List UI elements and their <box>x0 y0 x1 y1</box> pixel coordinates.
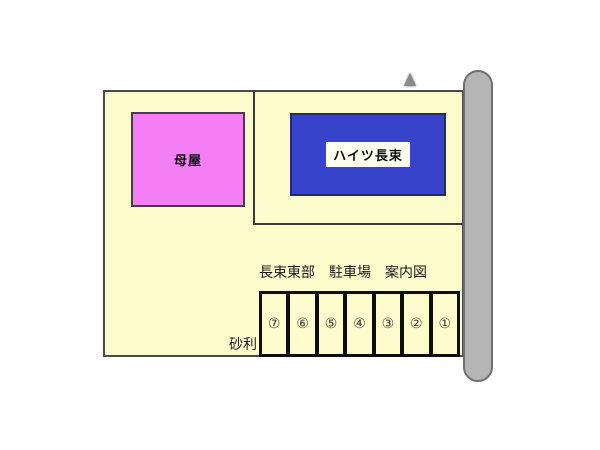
stall-number: ⑤ <box>325 316 338 332</box>
parking-stall: ③ <box>376 294 404 354</box>
parking-stall: ⑤ <box>319 294 347 354</box>
main-house-building: 母屋 <box>131 112 245 207</box>
stall-number: ③ <box>382 316 395 332</box>
parking-stall: ⑥ <box>290 294 318 354</box>
apartment-building: ハイツ長束 <box>290 113 446 196</box>
parking-stall: ④ <box>347 294 375 354</box>
stall-number: ① <box>438 316 451 332</box>
stall-number: ④ <box>353 316 366 332</box>
north-arrow-icon <box>404 73 416 86</box>
stall-number: ⑥ <box>296 316 309 332</box>
gravel-ground-label: 砂利 <box>211 334 257 354</box>
parking-guide-map: 母屋 ハイツ長束 長束東部 駐車場 案内図 ⑦ ⑥ ⑤ ④ ③ ② ① 砂利 <box>0 0 600 450</box>
stall-number: ⑦ <box>268 316 281 332</box>
main-house-label: 母屋 <box>174 150 202 169</box>
road <box>463 70 493 382</box>
parking-stall: ② <box>404 294 432 354</box>
map-title: 長束東部 駐車場 案内図 <box>259 262 469 282</box>
apartment-label: ハイツ長束 <box>326 142 410 167</box>
parking-stall: ① <box>433 294 457 354</box>
stall-number: ② <box>410 316 423 332</box>
parking-stall: ⑦ <box>262 294 290 354</box>
parking-stalls-row: ⑦ ⑥ ⑤ ④ ③ ② ① <box>259 291 460 357</box>
